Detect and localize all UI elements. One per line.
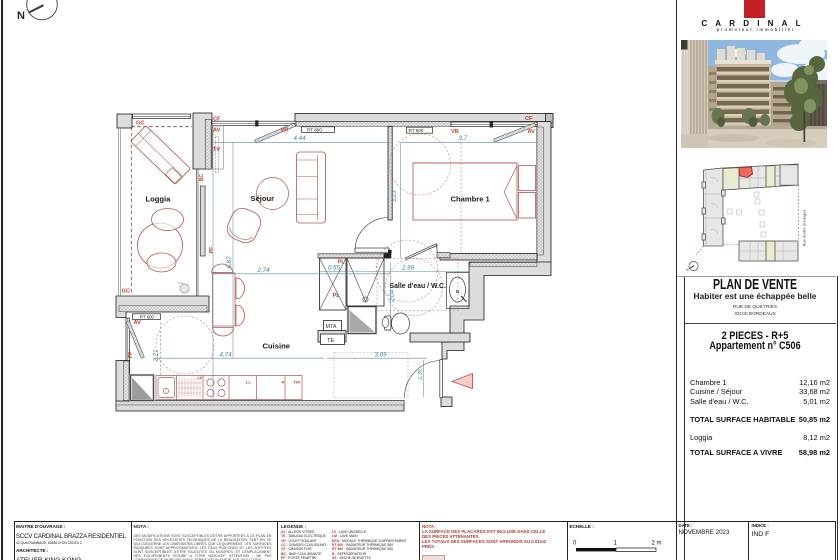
- svg-text:Rue André Soulages: Rue André Soulages: [802, 210, 807, 247]
- svg-text:3,7: 3,7: [459, 135, 468, 142]
- svg-text:1,35: 1,35: [418, 368, 424, 379]
- svg-text:VR: VR: [451, 129, 459, 135]
- svg-text:Séjour: Séjour: [251, 194, 275, 203]
- svg-text:lt-fls: lt-fls: [178, 281, 184, 285]
- svg-text:N: N: [686, 268, 689, 272]
- svg-text:GC: GC: [136, 121, 144, 127]
- svg-text:RT 600: RT 600: [140, 314, 155, 319]
- svg-text:Loggia: Loggia: [146, 195, 172, 204]
- svg-text:2,99: 2,99: [401, 265, 415, 272]
- svg-text:Cuisine: Cuisine: [263, 342, 290, 351]
- svg-text:3,09: 3,09: [375, 351, 388, 358]
- svg-text:TRI: TRI: [294, 380, 300, 385]
- svg-text:RT 800: RT 800: [307, 128, 322, 133]
- svg-text:1: 1: [614, 541, 618, 547]
- svg-text:2 m: 2 m: [652, 541, 662, 547]
- svg-text:VR: VR: [281, 128, 289, 134]
- svg-text:MTA: MTA: [326, 324, 337, 330]
- svg-text:RT 600: RT 600: [409, 128, 424, 133]
- svg-text:4,74: 4,74: [220, 351, 233, 358]
- svg-text:CF: CF: [213, 117, 221, 123]
- svg-text:0: 0: [573, 541, 577, 547]
- svg-text:Salle d'eau / W.C.: Salle d'eau / W.C.: [390, 283, 446, 290]
- svg-text:PL: PL: [338, 260, 346, 266]
- svg-text:AV: AV: [134, 320, 142, 326]
- svg-text:2,04: 2,04: [389, 289, 396, 303]
- svg-text:2,74: 2,74: [257, 267, 271, 274]
- svg-text:2,21: 2,21: [153, 349, 160, 362]
- svg-text:GC: GC: [122, 289, 130, 295]
- svg-text:R: R: [282, 380, 285, 385]
- svg-text:LV: LV: [198, 375, 203, 380]
- svg-text:6,87: 6,87: [226, 256, 233, 269]
- svg-text:3,23: 3,23: [391, 190, 398, 203]
- svg-text:LL: LL: [246, 380, 251, 385]
- svg-text:CF: CF: [525, 116, 533, 122]
- svg-text:BC: BC: [199, 174, 205, 182]
- svg-text:Chambre 1: Chambre 1: [451, 195, 491, 204]
- svg-text:0,65: 0,65: [328, 265, 341, 272]
- svg-text:TV: TV: [213, 147, 220, 153]
- svg-text:PF: PF: [128, 352, 134, 358]
- svg-text:AV: AV: [528, 129, 536, 135]
- svg-text:N: N: [17, 10, 25, 22]
- svg-text:4,44: 4,44: [294, 135, 307, 142]
- svg-text:TE: TE: [327, 338, 335, 344]
- svg-text:PF: PF: [209, 247, 215, 253]
- svg-text:PL: PL: [333, 293, 341, 299]
- svg-text:AV: AV: [213, 128, 221, 134]
